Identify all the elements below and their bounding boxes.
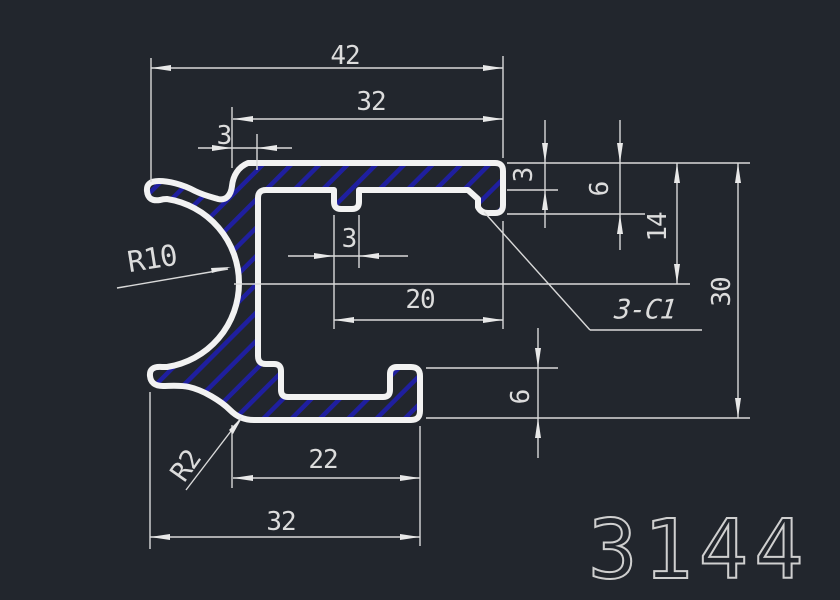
dim-width-top: 42: [330, 43, 359, 69]
dim-slot-width: 3: [342, 226, 357, 252]
dim-width-bottom: 32: [266, 509, 295, 535]
dim-tab-height: 6: [508, 390, 534, 405]
dim-tab-width: 22: [308, 447, 337, 473]
dim-wall-thickness: 3: [217, 123, 232, 149]
dim-jaw-radius: R10: [125, 241, 178, 277]
dim-lip-depth: 6: [587, 182, 613, 197]
cad-drawing-canvas: 3144 42 32 3 3 6 14 30 3 20 R10 3-C1 6 R…: [0, 0, 840, 600]
dim-jaw-axis: 14: [645, 212, 671, 241]
profile-outline: [147, 163, 503, 420]
dim-cavity-width: 20: [405, 287, 434, 313]
part-number: 3144: [588, 503, 809, 598]
dim-width-flange: 32: [356, 89, 385, 115]
dim-height-total: 30: [709, 277, 735, 306]
chamfer-note: 3-C1: [613, 297, 677, 324]
dim-flange-thickness: 3: [511, 168, 537, 183]
